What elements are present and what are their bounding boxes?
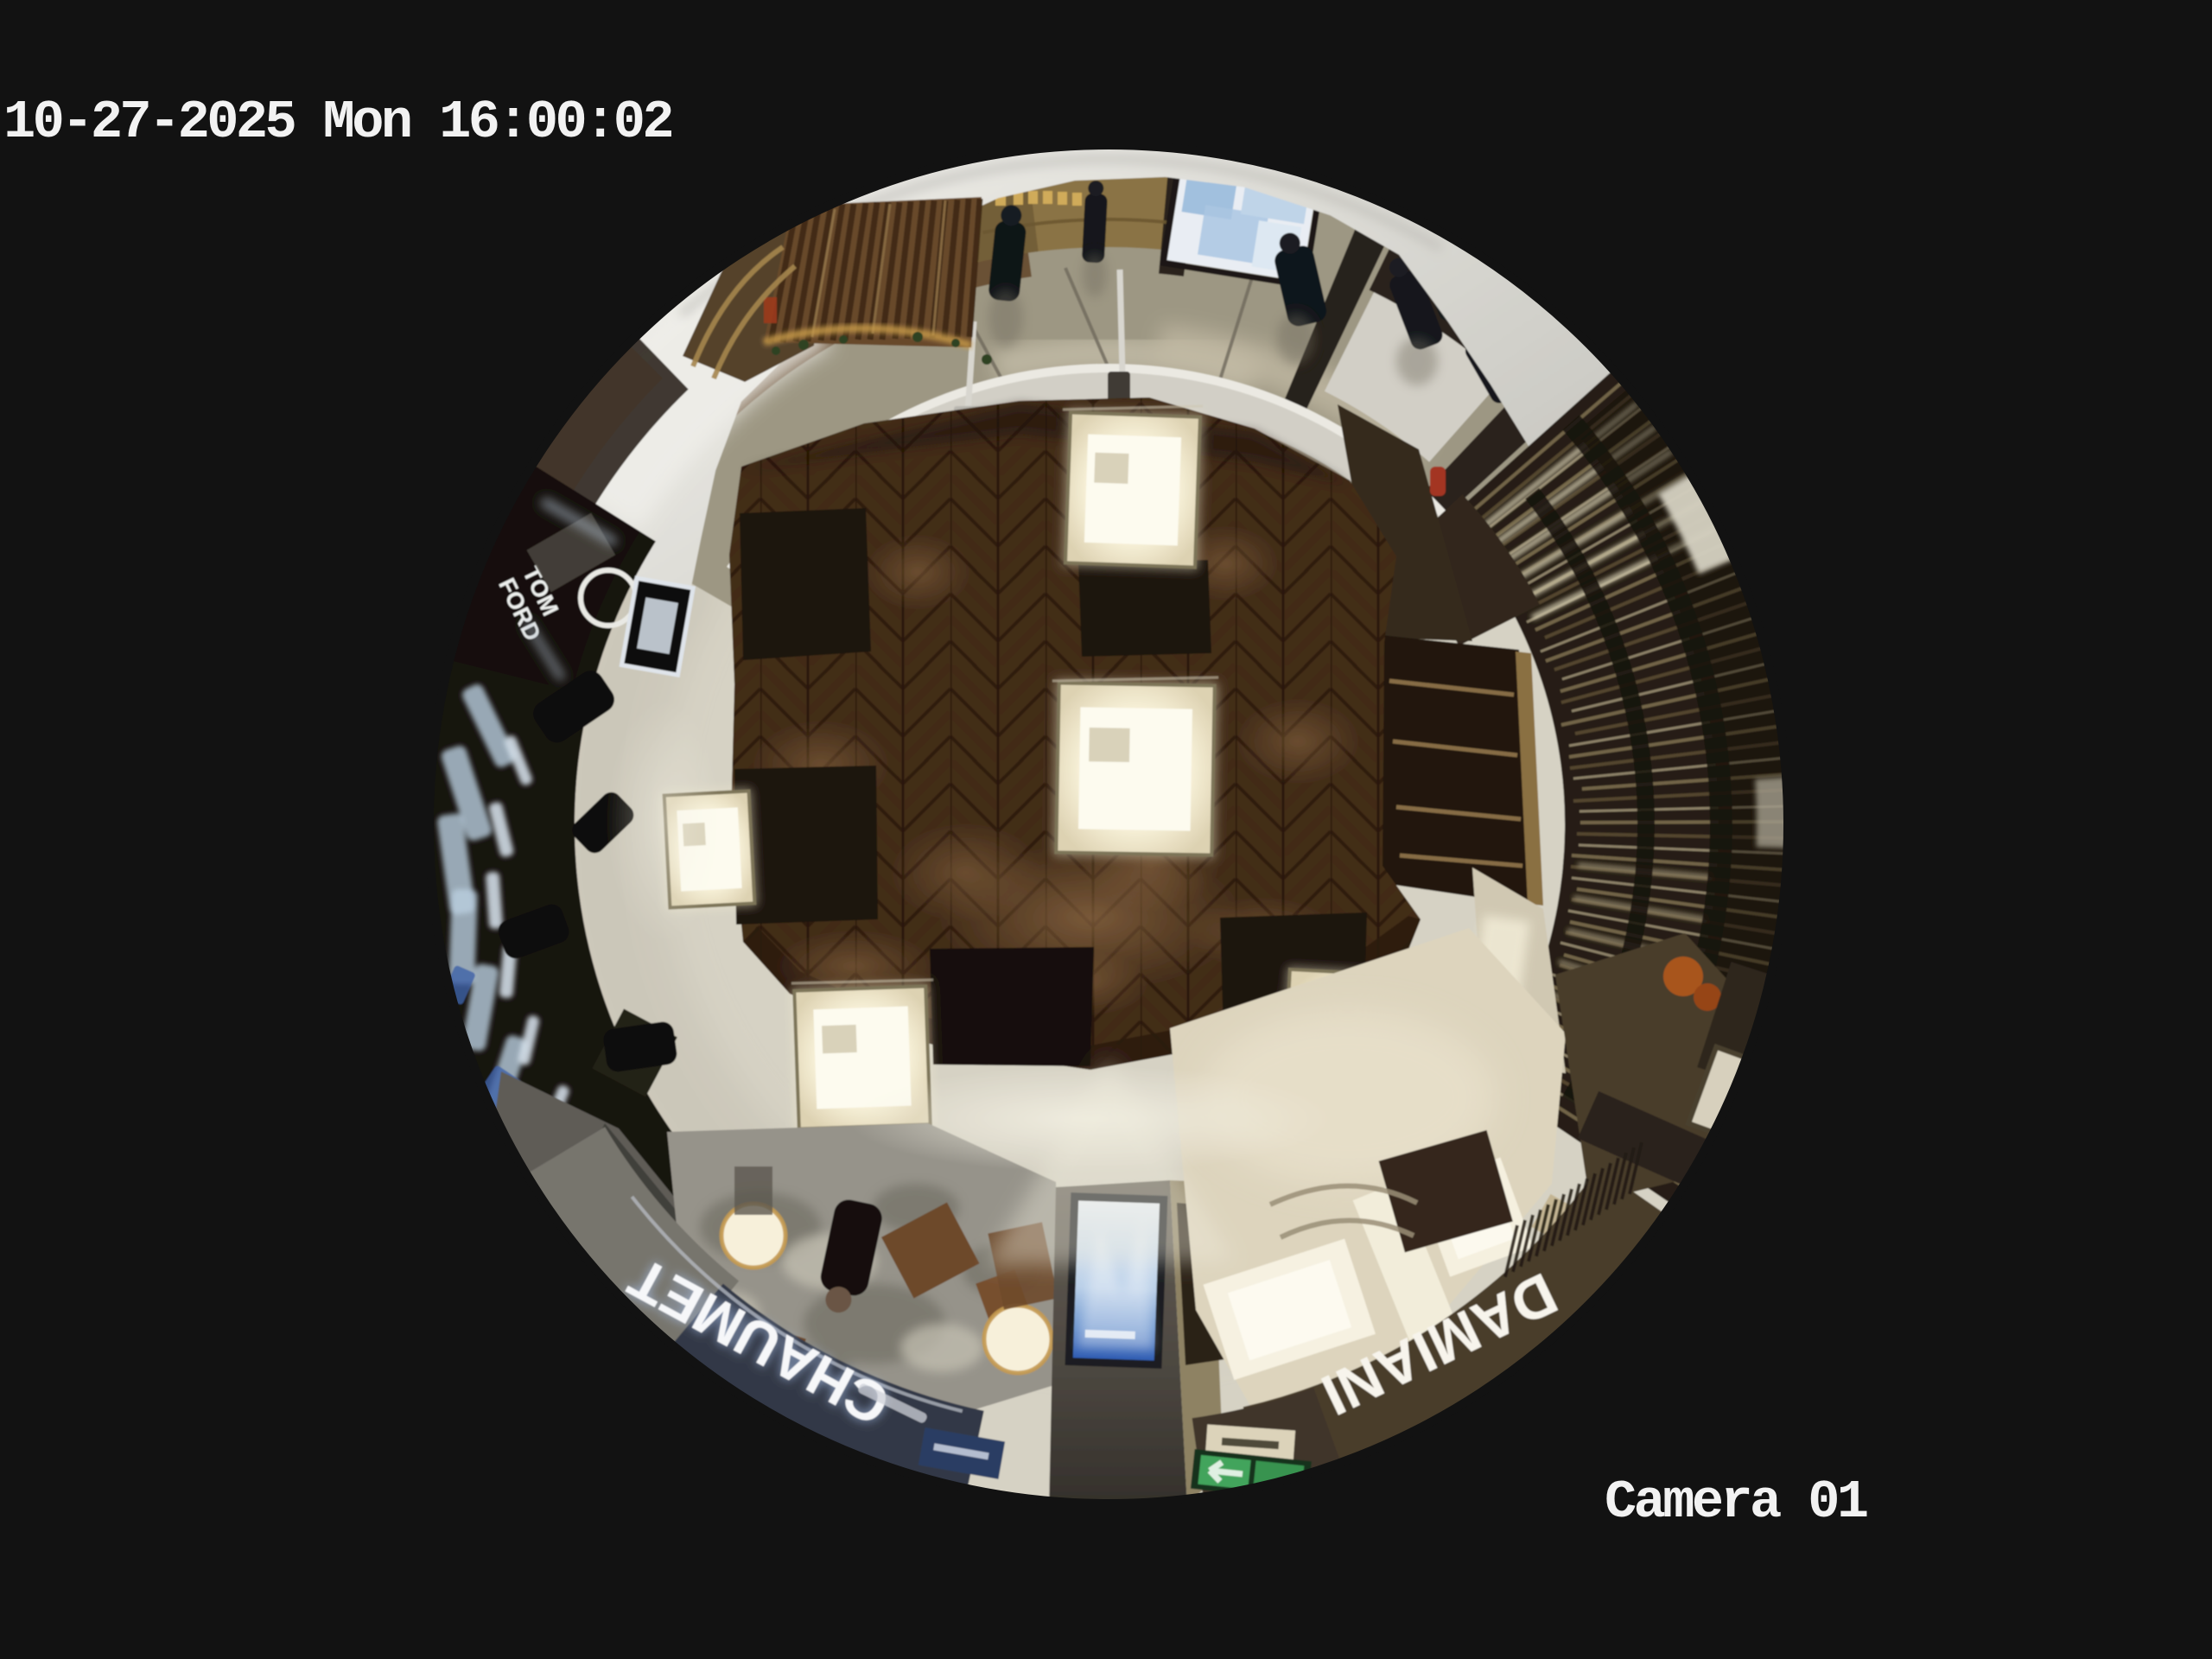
svg-text:10-27-2025 Mon 16:00:02: 10-27-2025 Mon 16:00:02 — [3, 92, 671, 153]
svg-text:Camera 01: Camera 01 — [1605, 1471, 1867, 1533]
